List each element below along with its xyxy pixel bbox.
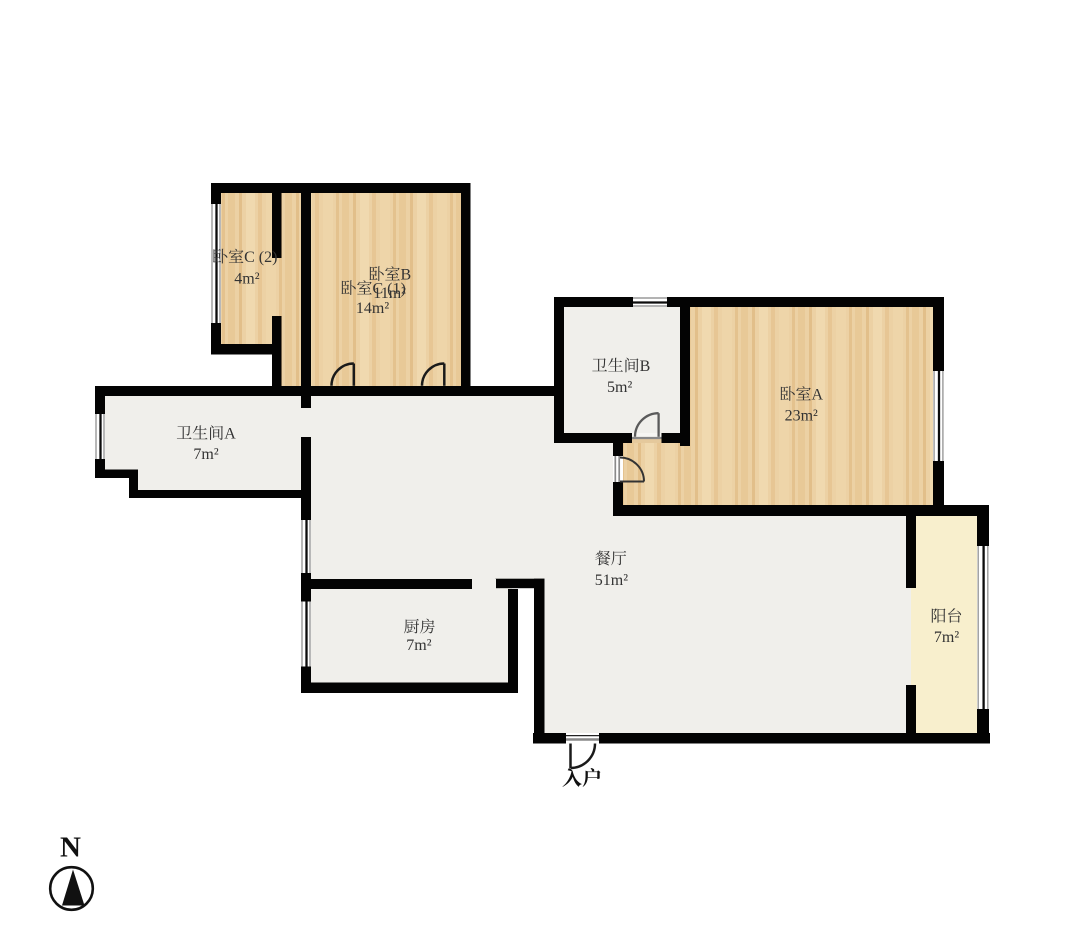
svg-text:B: B — [640, 358, 651, 375]
svg-text:14m²: 14m² — [356, 300, 389, 317]
svg-text:7m²: 7m² — [934, 629, 959, 646]
svg-text:51m²: 51m² — [595, 572, 628, 589]
svg-text:N: N — [60, 832, 81, 864]
svg-text:A: A — [224, 426, 236, 443]
svg-text:23m²: 23m² — [785, 408, 818, 425]
svg-text:A: A — [812, 387, 824, 404]
svg-text:7m²: 7m² — [193, 446, 218, 463]
svg-text:7m²: 7m² — [406, 637, 431, 654]
svg-text:C (2): C (2) — [244, 249, 277, 266]
svg-text:5m²: 5m² — [607, 379, 632, 396]
svg-text:4m²: 4m² — [234, 270, 259, 287]
